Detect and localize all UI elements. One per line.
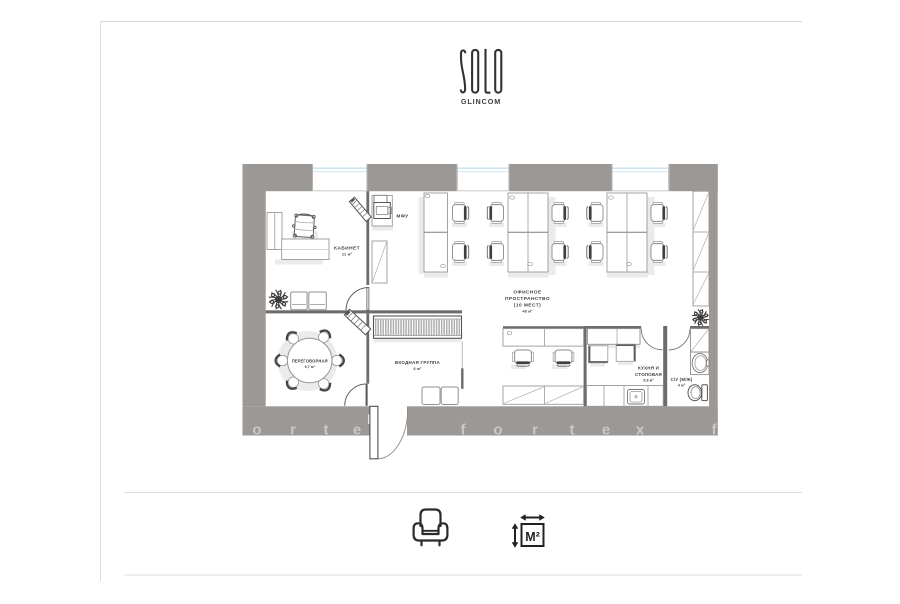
svg-text:o: o bbox=[493, 422, 502, 439]
svg-text:С/У (М/Ж): С/У (М/Ж) bbox=[671, 377, 693, 382]
svg-text:x: x bbox=[636, 422, 645, 439]
svg-text:СТОЛОВАЯ: СТОЛОВАЯ bbox=[635, 372, 662, 377]
svg-text:48 м²: 48 м² bbox=[522, 310, 533, 314]
svg-text:GLINCOM: GLINCOM bbox=[461, 97, 501, 106]
svg-text:9,7 м²: 9,7 м² bbox=[305, 365, 316, 369]
svg-text:ВХОДНАЯ ГРУППА: ВХОДНАЯ ГРУППА bbox=[395, 360, 441, 365]
svg-text:5,8 м²: 5,8 м² bbox=[643, 379, 654, 383]
svg-text:11 м²: 11 м² bbox=[342, 253, 353, 257]
svg-text:M²: M² bbox=[525, 530, 540, 544]
svg-text:6 м²: 6 м² bbox=[413, 367, 422, 371]
svg-text:(10 МЕСТ): (10 МЕСТ) bbox=[514, 303, 541, 309]
svg-text:КУХНЯ И: КУХНЯ И bbox=[638, 366, 659, 371]
svg-text:t: t bbox=[570, 422, 575, 439]
svg-text:e: e bbox=[353, 422, 361, 439]
svg-text:ОФИСНОЕ: ОФИСНОЕ bbox=[513, 290, 542, 296]
svg-text:o: o bbox=[252, 422, 261, 439]
svg-text:r: r bbox=[290, 422, 296, 439]
svg-text:МФУ: МФУ bbox=[396, 214, 409, 220]
svg-text:4 м²: 4 м² bbox=[678, 383, 686, 387]
svg-text:t: t bbox=[324, 422, 329, 439]
svg-text:ПЕРЕГОВОРНАЯ: ПЕРЕГОВОРНАЯ bbox=[292, 359, 328, 364]
svg-text:ПРОСТРАНСТВО: ПРОСТРАНСТВО bbox=[505, 296, 550, 302]
svg-text:КАБИНЕТ: КАБИНЕТ bbox=[334, 246, 360, 252]
svg-text:e: e bbox=[602, 422, 610, 439]
svg-text:r: r bbox=[532, 422, 538, 439]
